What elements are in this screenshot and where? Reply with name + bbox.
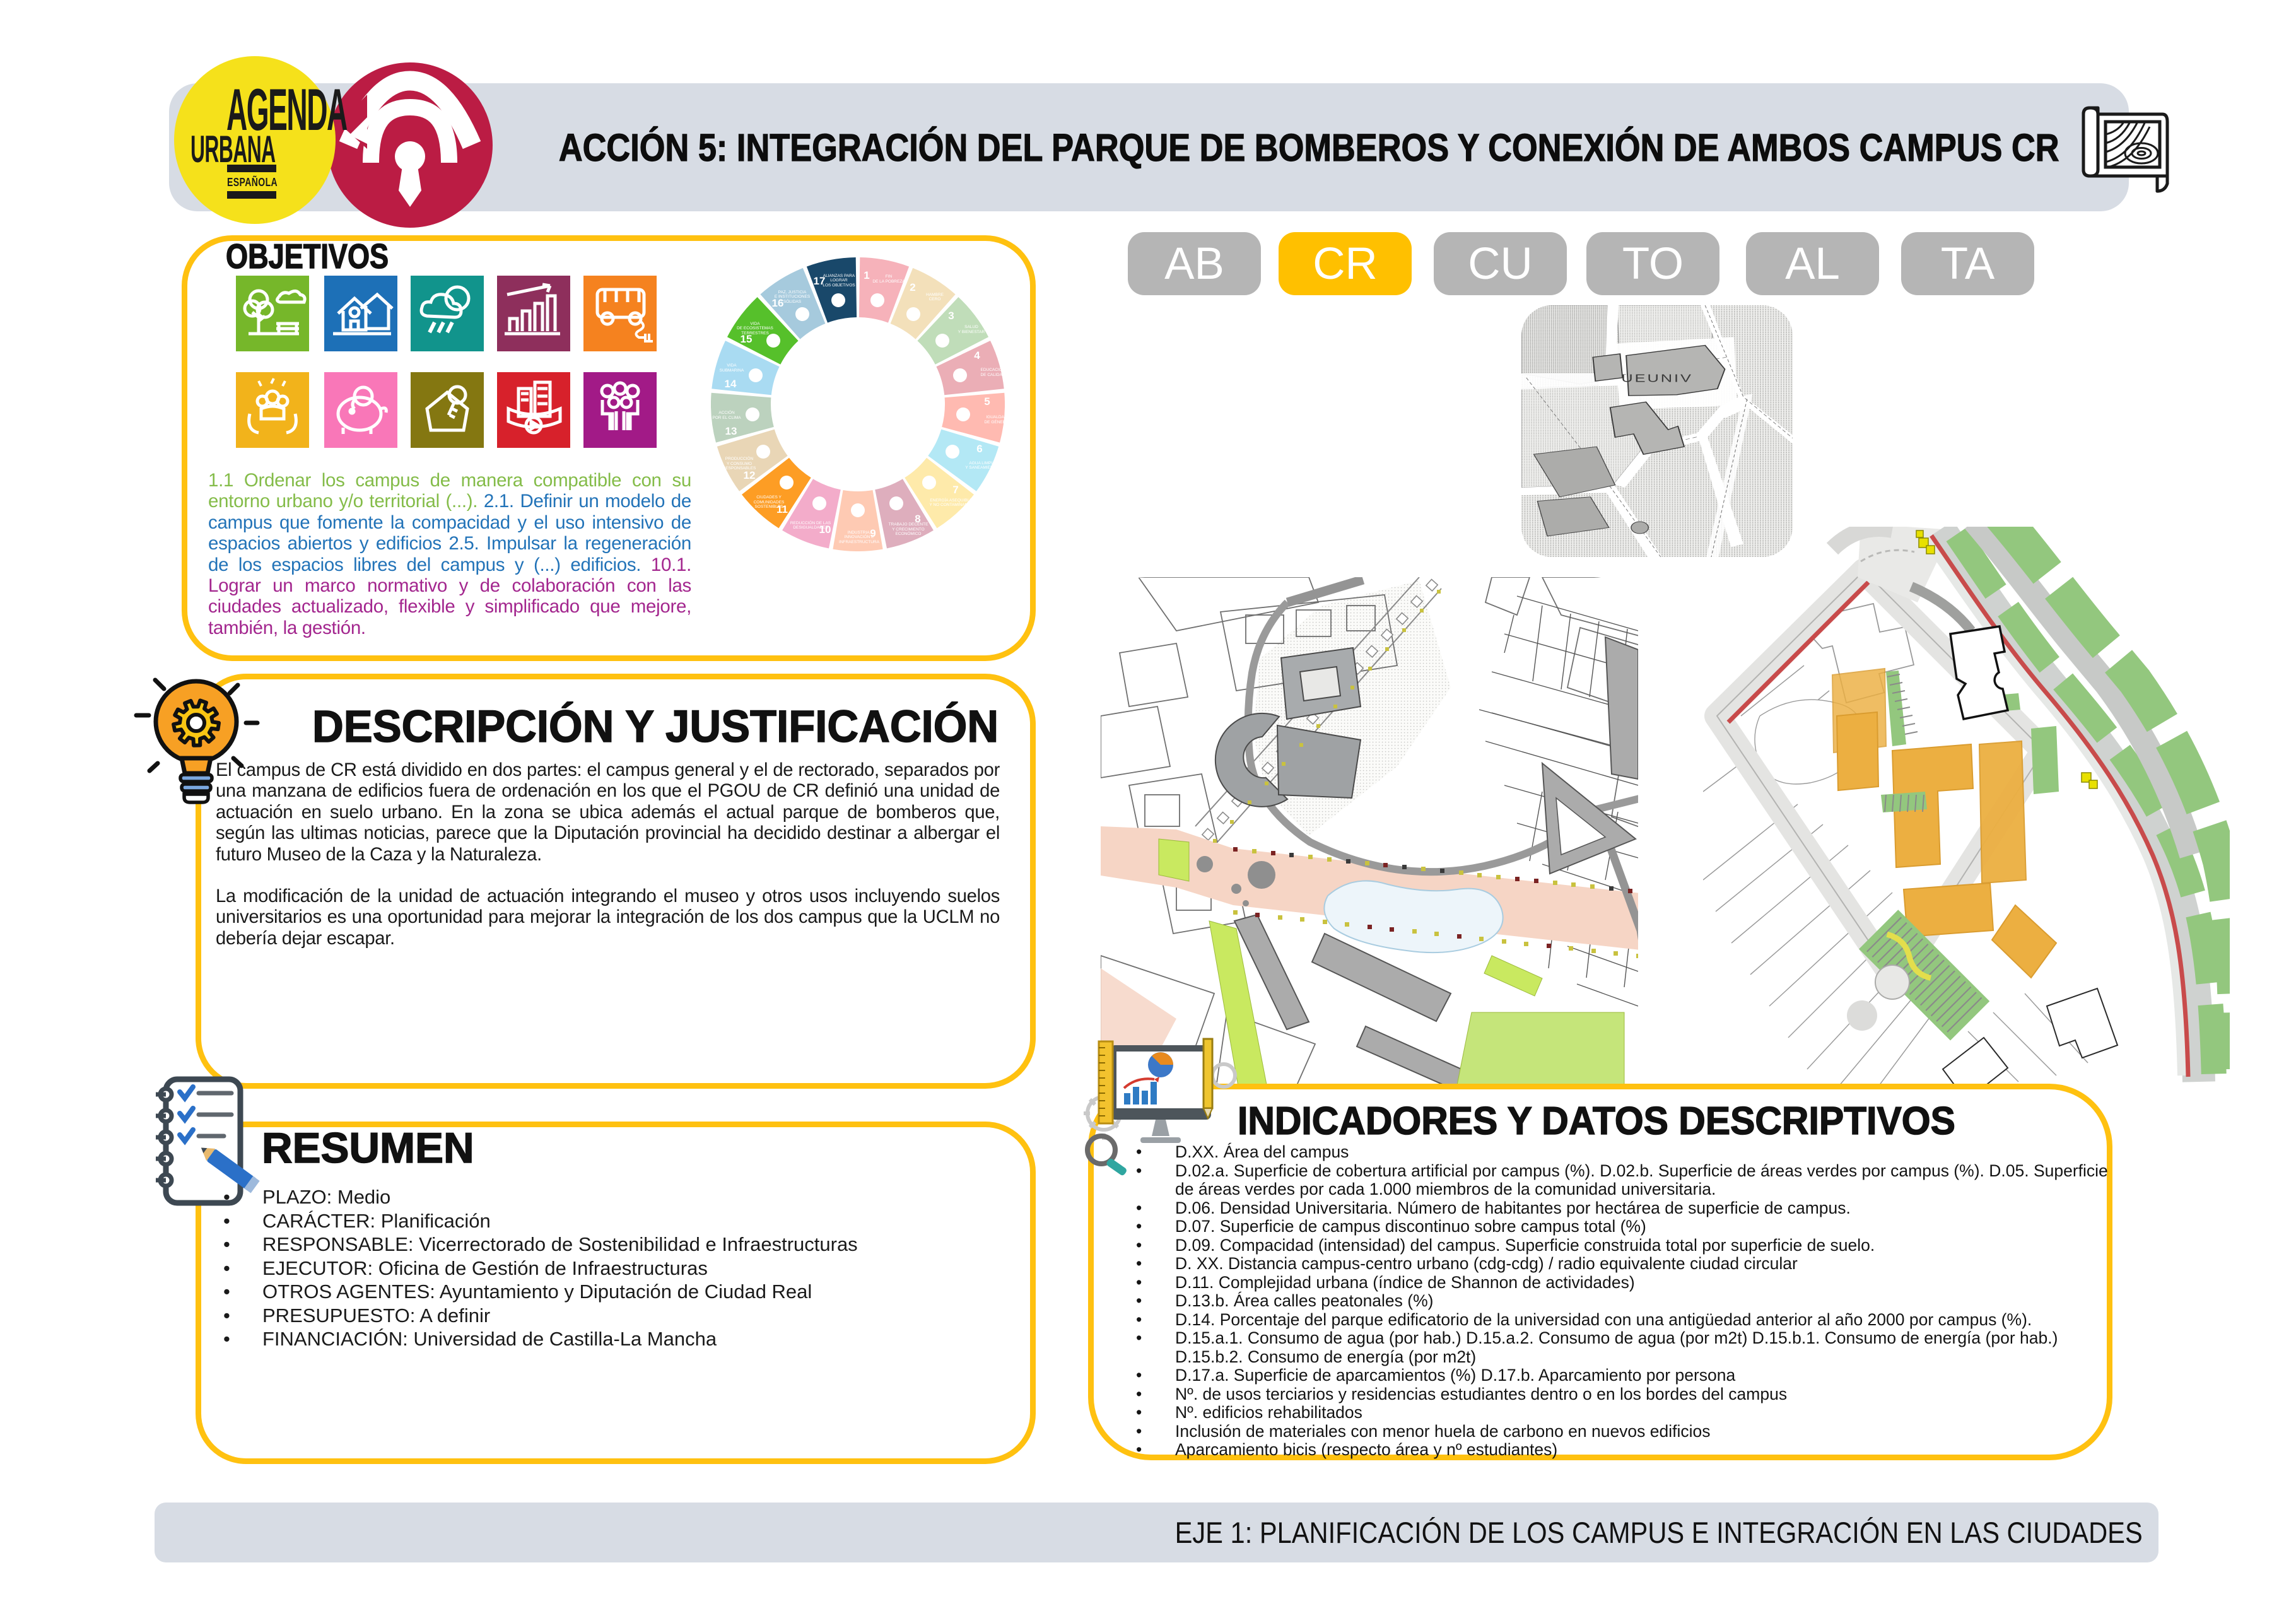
svg-text:SOSTENIBLES: SOSTENIBLES [754,505,783,509]
svg-text:HAMBRE: HAMBRE [926,293,944,297]
svg-text:Y NO CONTAMINANTE: Y NO CONTAMINANTE [929,503,973,507]
svg-text:PAZ, JUSTICIA: PAZ, JUSTICIA [778,290,807,295]
svg-text:COMUNIDADES: COMUNIDADES [754,500,785,505]
svg-text:SÓLIDAS: SÓLIDAS [783,298,802,304]
svg-text:PRODUCCIÓN: PRODUCCIÓN [725,455,754,461]
svg-text:12: 12 [744,469,756,481]
svg-text:VIDA: VIDA [727,363,737,368]
svg-text:INNOVACIÓN E: INNOVACIÓN E [845,534,874,539]
svg-text:5: 5 [984,395,990,407]
svg-text:13: 13 [725,425,737,437]
svg-text:INFRAESTRUCTURA: INFRAESTRUCTURA [839,540,880,544]
svg-text:RESPONSABLES: RESPONSABLES [723,466,756,471]
svg-text:CERO: CERO [929,297,941,302]
svg-text:CIUDADES Y: CIUDADES Y [756,495,782,500]
svg-text:3: 3 [948,310,954,322]
svg-text:UEUNIV: UEUNIV [1621,372,1693,384]
svg-text:TRABAJO DECENTE: TRABAJO DECENTE [889,522,929,527]
svg-text:6: 6 [976,443,982,455]
svg-text:VIDA: VIDA [750,322,760,326]
svg-text:SALUD: SALUD [964,325,978,329]
svg-text:DE GÉNERO: DE GÉNERO [984,419,1005,425]
svg-text:E INSTITUCIONES: E INSTITUCIONES [775,295,811,299]
svg-text:ACCIÓN: ACCIÓN [718,409,735,415]
svg-text:REDUCCIÓN DE LAS: REDUCCIÓN DE LAS [790,520,831,525]
svg-text:SUBMARINA: SUBMARINA [720,368,744,373]
svg-text:14: 14 [725,378,737,390]
svg-text:7: 7 [952,484,958,496]
svg-text:LOS OBJETIVOS: LOS OBJETIVOS [823,283,855,288]
svg-text:Y SANEAMIENTO: Y SANEAMIENTO [965,466,999,470]
svg-text:Y CONSUMO: Y CONSUMO [727,462,752,466]
svg-text:DE CALIDAD: DE CALIDAD [980,373,1005,377]
svg-text:4: 4 [974,349,980,361]
svg-text:INDUSTRIA,: INDUSTRIA, [848,530,871,535]
svg-text:Y BIENESTAR: Y BIENESTAR [958,330,985,334]
svg-text:AGUA LIMPIA: AGUA LIMPIA [969,461,995,466]
svg-text:ALIANZAS PARA: ALIANZAS PARA [823,274,855,278]
svg-text:EDUCACIÓN: EDUCACIÓN [980,366,1005,372]
svg-text:FIN: FIN [886,274,893,279]
svg-text:ENERGÍA ASEQUIBLE: ENERGÍA ASEQUIBLE [930,497,973,503]
svg-text:DE LA POBREZA: DE LA POBREZA [872,279,905,284]
svg-text:TERRESTRES: TERRESTRES [741,331,769,336]
svg-text:1: 1 [864,269,869,281]
svg-text:IGUALDAD: IGUALDAD [986,415,1005,419]
svg-text:2: 2 [910,281,915,293]
svg-text:DESIGUALDADES: DESIGUALDADES [793,525,828,530]
svg-text:DE ECOSISTEMAS: DE ECOSISTEMAS [737,326,773,331]
svg-text:ECONÓMICO: ECONÓMICO [896,530,922,536]
svg-text:LOGRAR: LOGRAR [830,278,848,283]
svg-text:POR EL CLIMA: POR EL CLIMA [712,416,741,420]
svg-text:Y CRECIMIENTO: Y CRECIMIENTO [892,527,924,532]
